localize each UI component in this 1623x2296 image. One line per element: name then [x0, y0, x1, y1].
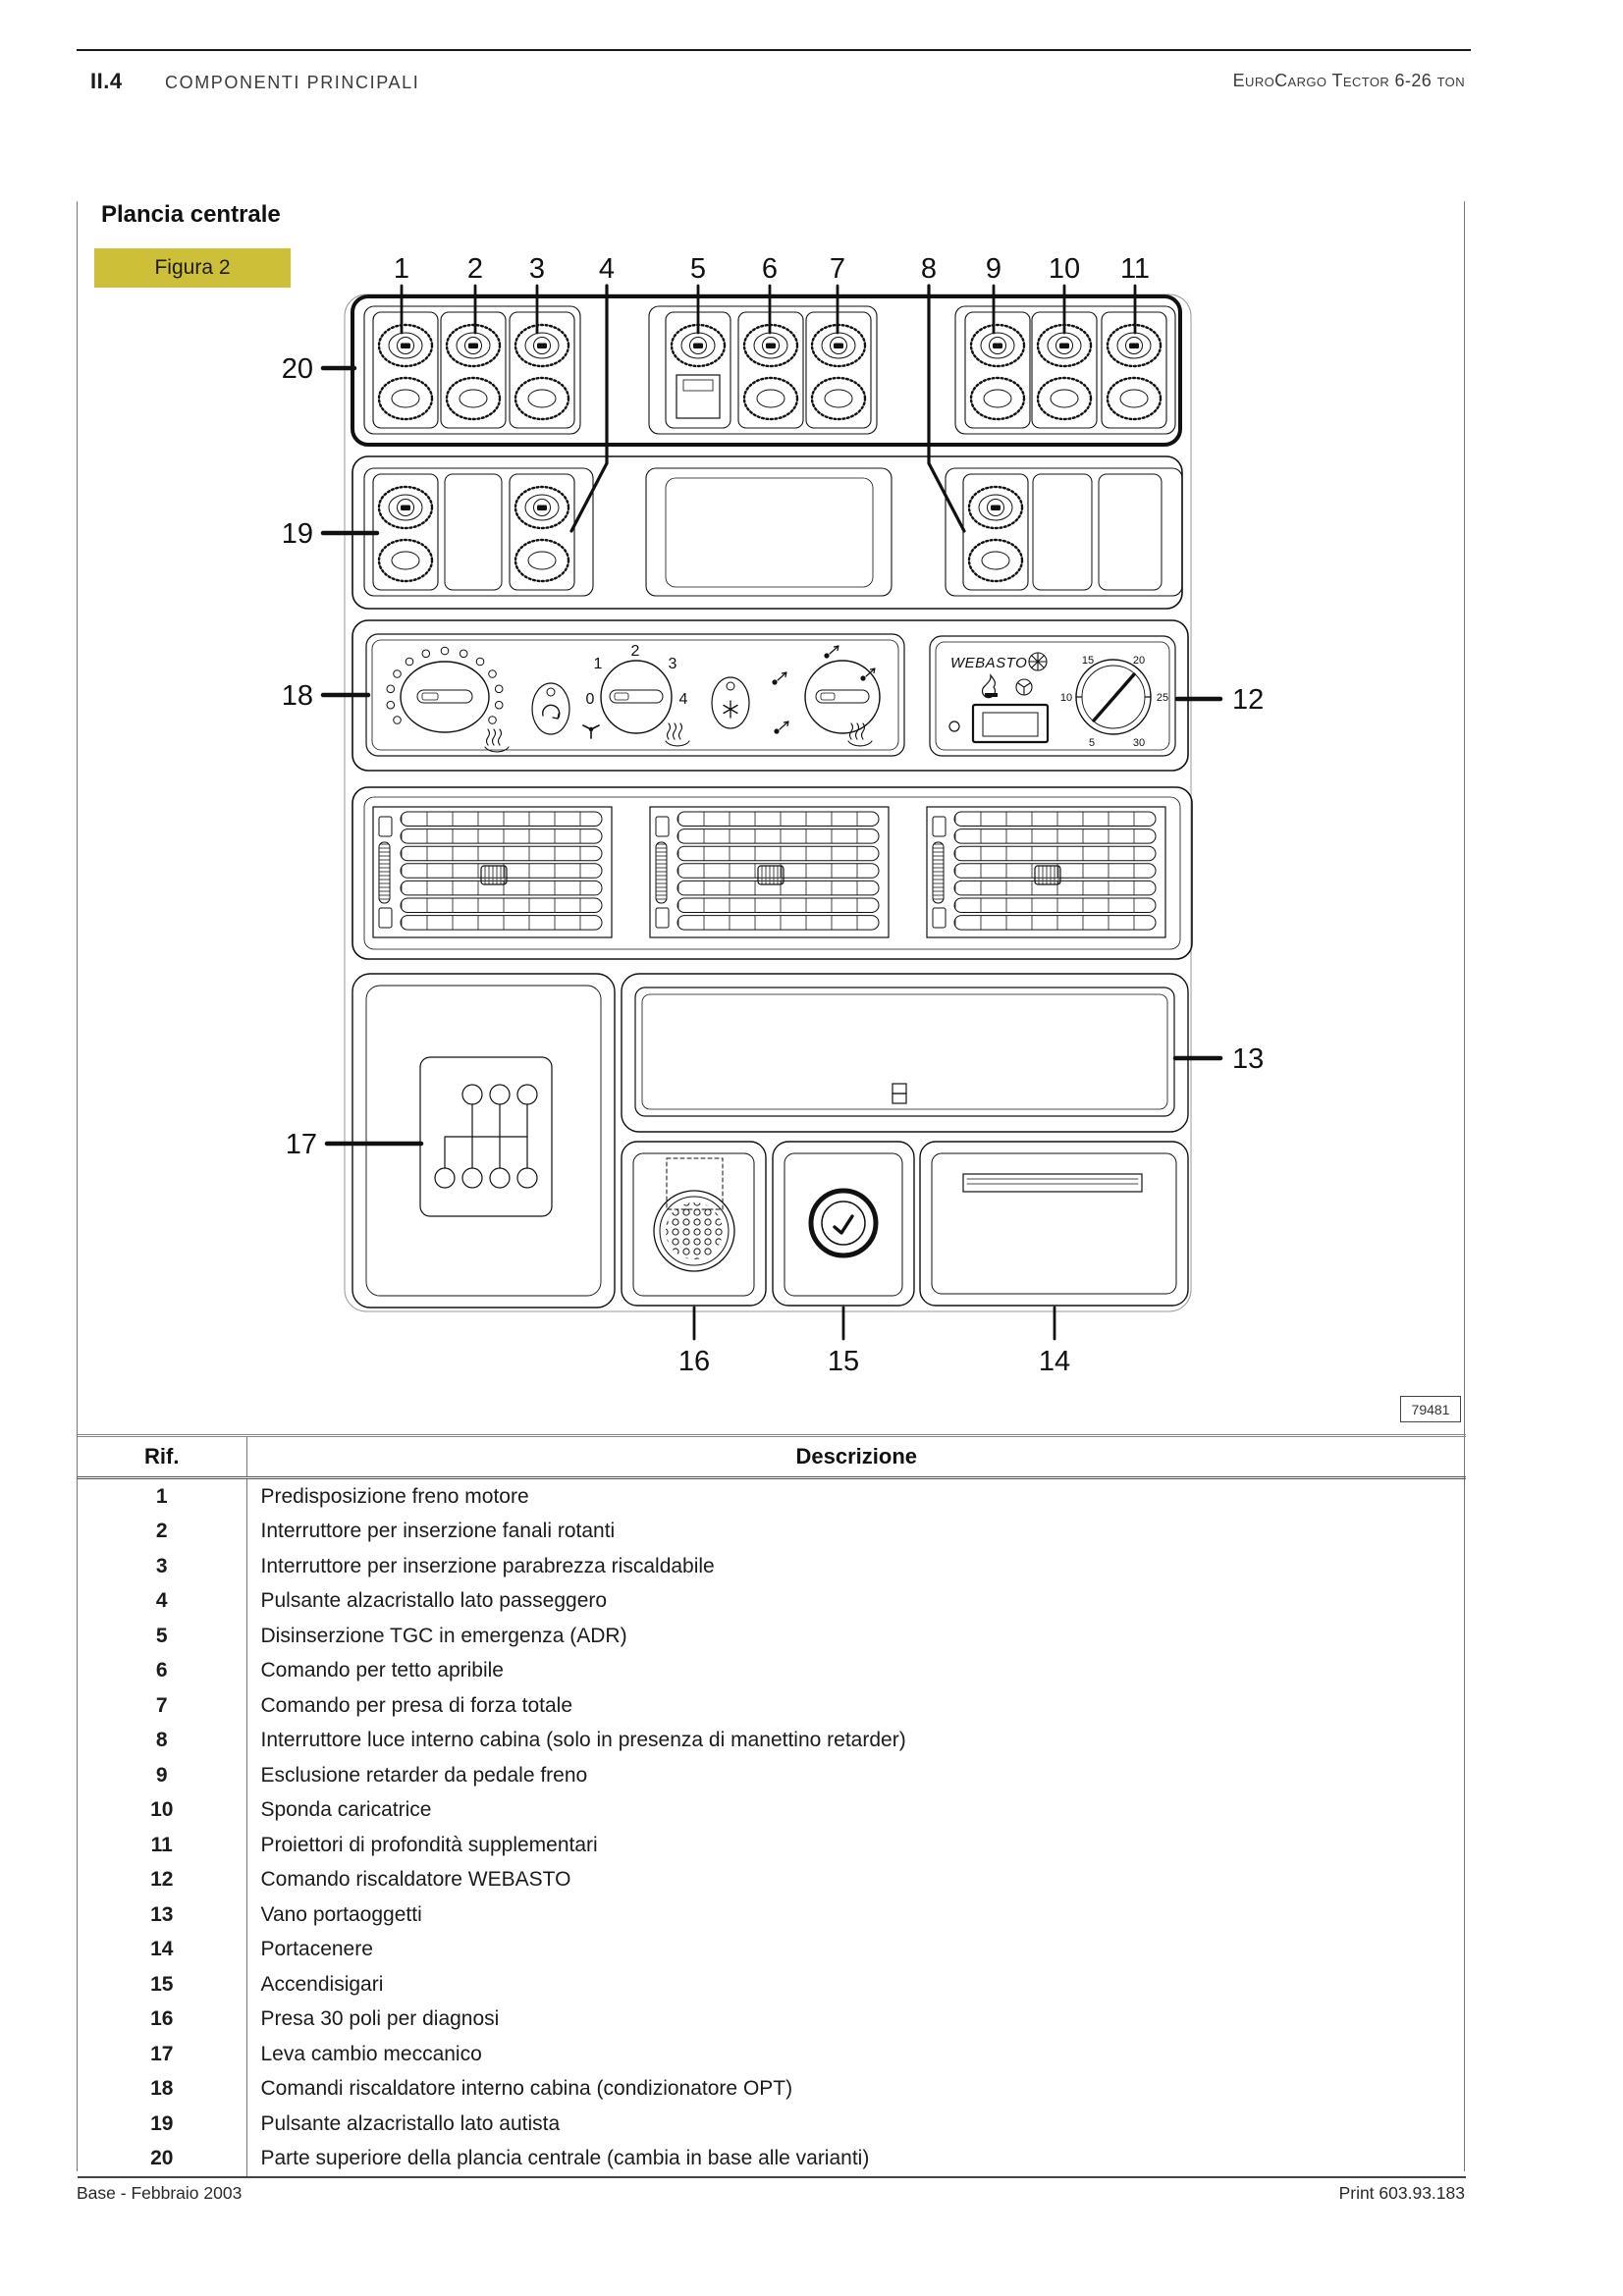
- callout-15: 15: [828, 1346, 859, 1377]
- desc-cell: Parte superiore della plancia centrale (…: [246, 2142, 1466, 2178]
- desc-cell: Presa 30 poli per diagnosi: [246, 2002, 1466, 2038]
- desc-cell: Leva cambio meccanico: [246, 2037, 1466, 2072]
- callout-14: 14: [1039, 1346, 1070, 1377]
- ref-cell: 19: [78, 2107, 246, 2142]
- switch-window-driver: [373, 474, 438, 590]
- table-row: 16Presa 30 poli per diagnosi: [78, 2002, 1466, 2038]
- table-row: 14Portacenere: [78, 1933, 1466, 1968]
- footer-print-code: Print 603.93.183: [1339, 2183, 1465, 2204]
- ref-cell: 14: [78, 1933, 246, 1968]
- fan-speed-3: 3: [669, 656, 677, 672]
- desc-cell: Portacenere: [246, 1933, 1466, 1968]
- table-row: 1Predisposizione freno motore: [78, 1478, 1466, 1515]
- description-table: Rif. Descrizione 1Predisposizione freno …: [78, 1434, 1466, 2178]
- fan-speed-0: 0: [586, 691, 595, 708]
- flame-icon: [982, 675, 998, 698]
- desc-cell: Interruttore per inserzione fanali rotan…: [246, 1515, 1466, 1550]
- dial-5: 5: [1089, 737, 1095, 749]
- webasto-brand: WEBASTO: [950, 655, 1027, 671]
- ref-cell: 13: [78, 1897, 246, 1933]
- ref-header: Rif.: [78, 1436, 246, 1478]
- table-row: 17Leva cambio meccanico: [78, 2037, 1466, 2072]
- ref-cell: 6: [78, 1654, 246, 1689]
- fan-speed-knob: 1 2 3 0 4: [586, 643, 688, 733]
- table-row: 3Interruttore per inserzione parabrezza …: [78, 1549, 1466, 1584]
- ref-cell: 8: [78, 1724, 246, 1759]
- air-vents-panel: [352, 787, 1192, 959]
- dial-25: 25: [1157, 692, 1168, 704]
- manual-page: II.4 COMPONENTI PRINCIPALI EuroCargo Tec…: [0, 0, 1623, 2296]
- ref-cell: 2: [78, 1515, 246, 1550]
- fan-speed-1: 1: [594, 656, 603, 672]
- desc-cell: Predisposizione freno motore: [246, 1478, 1466, 1515]
- ref-cell: 9: [78, 1758, 246, 1793]
- section-title: COMPONENTI PRINCIPALI: [165, 73, 419, 93]
- glovebox-panel: [622, 974, 1188, 1132]
- upper-switch-panel: [352, 296, 1180, 445]
- glovebox-latch: [893, 1084, 906, 1103]
- content-box: Plancia centrale Figura 2: [77, 201, 1465, 2171]
- ref-cell: 11: [78, 1828, 246, 1863]
- table-row: 8Interruttore luce interno cabina (solo …: [78, 1724, 1466, 1759]
- edition-title: EuroCargo Tector 6-26 ton: [1233, 71, 1465, 91]
- ac-button: [712, 677, 749, 728]
- webasto-panel: WEBASTO: [930, 636, 1175, 756]
- table-row: 13Vano portaoggetti: [78, 1897, 1466, 1933]
- table-row: 2Interruttore per inserzione fanali rota…: [78, 1515, 1466, 1550]
- fan-icon: [583, 725, 599, 738]
- shift-pattern: [435, 1085, 537, 1188]
- temperature-knob: [387, 647, 503, 732]
- desc-cell: Pulsante alzacristallo lato autista: [246, 2107, 1466, 2142]
- table-row: 19Pulsante alzacristallo lato autista: [78, 2107, 1466, 2142]
- table-row: 4Pulsante alzacristallo lato passeggero: [78, 1584, 1466, 1620]
- recirculation-button: [532, 683, 569, 734]
- switch-window-passenger: [510, 474, 574, 590]
- callout-1: 1: [394, 253, 409, 285]
- callout-17: 17: [286, 1129, 317, 1160]
- desc-header: Descrizione: [246, 1436, 1466, 1478]
- dashboard-figure: 1 2 3 0 4: [78, 240, 1466, 1433]
- figure-heading: Plancia centrale: [101, 201, 281, 229]
- dial-15: 15: [1082, 655, 1094, 667]
- ashtray-panel: [920, 1142, 1188, 1306]
- dashboard-contour: [345, 294, 1191, 1311]
- desc-cell: Disinserzione TGC in emergenza (ADR): [246, 1619, 1466, 1654]
- ref-cell: 16: [78, 2002, 246, 2038]
- table-row: 12Comando riscaldatore WEBASTO: [78, 1863, 1466, 1898]
- callout-2: 2: [467, 253, 483, 285]
- air-vent-left: [373, 807, 612, 937]
- callout-6: 6: [762, 253, 778, 285]
- table-row: 15Accendisigari: [78, 1967, 1466, 2002]
- lighter-icon: [835, 1216, 852, 1233]
- table-row: 9Esclusione retarder da pedale freno: [78, 1758, 1466, 1793]
- air-vent-center: [650, 807, 889, 937]
- airflow-feet-icon: [774, 721, 788, 734]
- ref-cell: 4: [78, 1584, 246, 1620]
- desc-cell: Interruttore luce interno cabina (solo i…: [246, 1724, 1466, 1759]
- webasto-led: [949, 721, 959, 731]
- callout-16: 16: [678, 1346, 710, 1377]
- airflow-face-icon: [772, 672, 786, 685]
- callout-8: 8: [921, 253, 937, 285]
- callout-20: 20: [282, 353, 313, 385]
- desc-cell: Sponda caricatrice: [246, 1793, 1466, 1829]
- ref-cell: 17: [78, 2037, 246, 2072]
- table-row: 10Sponda caricatrice: [78, 1793, 1466, 1829]
- ref-cell: 18: [78, 2072, 246, 2108]
- desc-cell: Esclusione retarder da pedale freno: [246, 1758, 1466, 1793]
- fan-speed-4: 4: [679, 691, 688, 708]
- defrost-icon: [485, 729, 509, 752]
- callout-9: 9: [986, 253, 1001, 285]
- desc-cell: Accendisigari: [246, 1967, 1466, 2002]
- callout-3: 3: [529, 253, 545, 285]
- ref-cell: 7: [78, 1688, 246, 1724]
- desc-cell: Comandi riscaldatore interno cabina (con…: [246, 2072, 1466, 2108]
- air-vent-right: [927, 807, 1165, 937]
- switch-beacon: [441, 312, 506, 428]
- desc-cell: Pulsante alzacristallo lato passeggero: [246, 1584, 1466, 1620]
- table-header-row: Rif. Descrizione: [78, 1436, 1466, 1478]
- footer-edition: Base - Febbraio 2003: [77, 2183, 242, 2204]
- callout-11: 11: [1120, 253, 1150, 285]
- callout-4: 4: [599, 253, 615, 285]
- section-number: II.4: [90, 69, 123, 94]
- desc-cell: Comando per tetto apribile: [246, 1654, 1466, 1689]
- webasto-timer-dial: 15 20 10 25 5 30: [1060, 655, 1168, 749]
- header-rule: [77, 49, 1471, 51]
- dial-30: 30: [1133, 737, 1145, 749]
- defrost-icon: [848, 723, 872, 746]
- desc-cell: Comando per presa di forza totale: [246, 1688, 1466, 1724]
- ref-cell: 5: [78, 1619, 246, 1654]
- cigarette-lighter-panel: [773, 1142, 914, 1306]
- ref-cell: 15: [78, 1967, 246, 2002]
- table-row: 11Proiettori di profondità supplementari: [78, 1828, 1466, 1863]
- ref-cell: 20: [78, 2142, 246, 2178]
- desc-cell: Interruttore per inserzione parabrezza r…: [246, 1549, 1466, 1584]
- table-row: 7Comando per presa di forza totale: [78, 1688, 1466, 1724]
- fan-speed-2: 2: [631, 643, 640, 660]
- callout-12: 12: [1232, 684, 1264, 716]
- diagnostic-socket-panel: [622, 1142, 766, 1306]
- callout-10: 10: [1049, 253, 1080, 285]
- switch-cabin-light: [965, 312, 1030, 428]
- dial-10: 10: [1060, 692, 1072, 704]
- desc-cell: Vano portaoggetti: [246, 1897, 1466, 1933]
- heater-control-panel: 1 2 3 0 4: [352, 620, 1188, 771]
- table-row: 18Comandi riscaldatore interno cabina (c…: [78, 2072, 1466, 2108]
- callout-7: 7: [830, 253, 845, 285]
- table-row: 5Disinserzione TGC in emergenza (ADR): [78, 1619, 1466, 1654]
- rosette-icon: [1029, 653, 1047, 670]
- small-fan-icon: [1016, 679, 1032, 695]
- desc-cell: Comando riscaldatore WEBASTO: [246, 1863, 1466, 1898]
- gear-lever-panel: [352, 974, 615, 1308]
- air-distribution-knob: [805, 661, 880, 733]
- switch-interior-light: [963, 474, 1028, 590]
- page-header: II.4 COMPONENTI PRINCIPALI EuroCargo Tec…: [77, 67, 1465, 100]
- airflow-up-icon: [824, 646, 839, 659]
- dial-20: 20: [1133, 655, 1145, 667]
- ref-cell: 1: [78, 1478, 246, 1515]
- table-row: 6Comando per tetto apribile: [78, 1654, 1466, 1689]
- callout-19: 19: [282, 518, 313, 550]
- ref-cell: 12: [78, 1863, 246, 1898]
- ref-cell: 3: [78, 1549, 246, 1584]
- ref-cell: 10: [78, 1793, 246, 1829]
- callout-13: 13: [1232, 1043, 1264, 1075]
- defrost-icon: [666, 723, 689, 746]
- page-footer: Base - Febbraio 2003 Print 603.93.183: [77, 2183, 1465, 2204]
- callout-5: 5: [690, 253, 706, 285]
- table-row: 20Parte superiore della plancia centrale…: [78, 2142, 1466, 2178]
- callout-18: 18: [282, 680, 313, 712]
- desc-cell: Proiettori di profondità supplementari: [246, 1828, 1466, 1863]
- window-lifter-panel: [352, 456, 1182, 609]
- switch-engine-brake: [373, 312, 438, 428]
- switch-heated-windscreen: [510, 312, 574, 428]
- figure-code-badge: 79481: [1400, 1396, 1461, 1422]
